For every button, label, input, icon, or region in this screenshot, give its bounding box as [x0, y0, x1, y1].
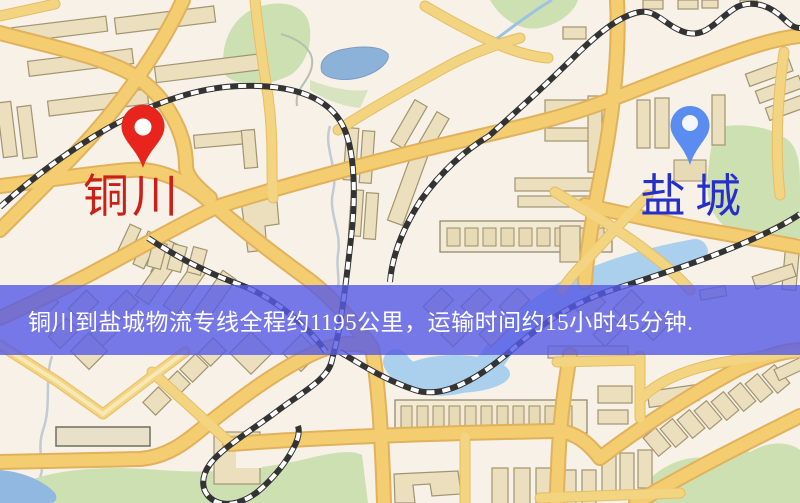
origin-pin-shape[interactable]: [122, 105, 165, 168]
route-info-banner: 铜川到盐城物流专线全程约1195公里，运输时间约15小时45分钟.: [0, 285, 800, 355]
destination-pin-shape[interactable]: [671, 106, 710, 165]
destination-marker-pin[interactable]: [665, 98, 717, 168]
destination-pin-hole: [682, 115, 698, 131]
map-canvas[interactable]: [0, 0, 800, 503]
origin-city-label: 铜川: [83, 173, 181, 221]
route-info-text: 铜川到盐城物流专线全程约1195公里，运输时间约15小时45分钟.: [28, 303, 693, 337]
origin-marker-pin[interactable]: [116, 100, 172, 172]
origin-pin-hole: [135, 119, 152, 136]
destination-city-label: 盐城: [640, 173, 750, 221]
map-screenshot: 铜川 盐城 铜川到盐城物流专线全程约1195公里，运输时间约15小时45分钟.: [0, 0, 800, 503]
